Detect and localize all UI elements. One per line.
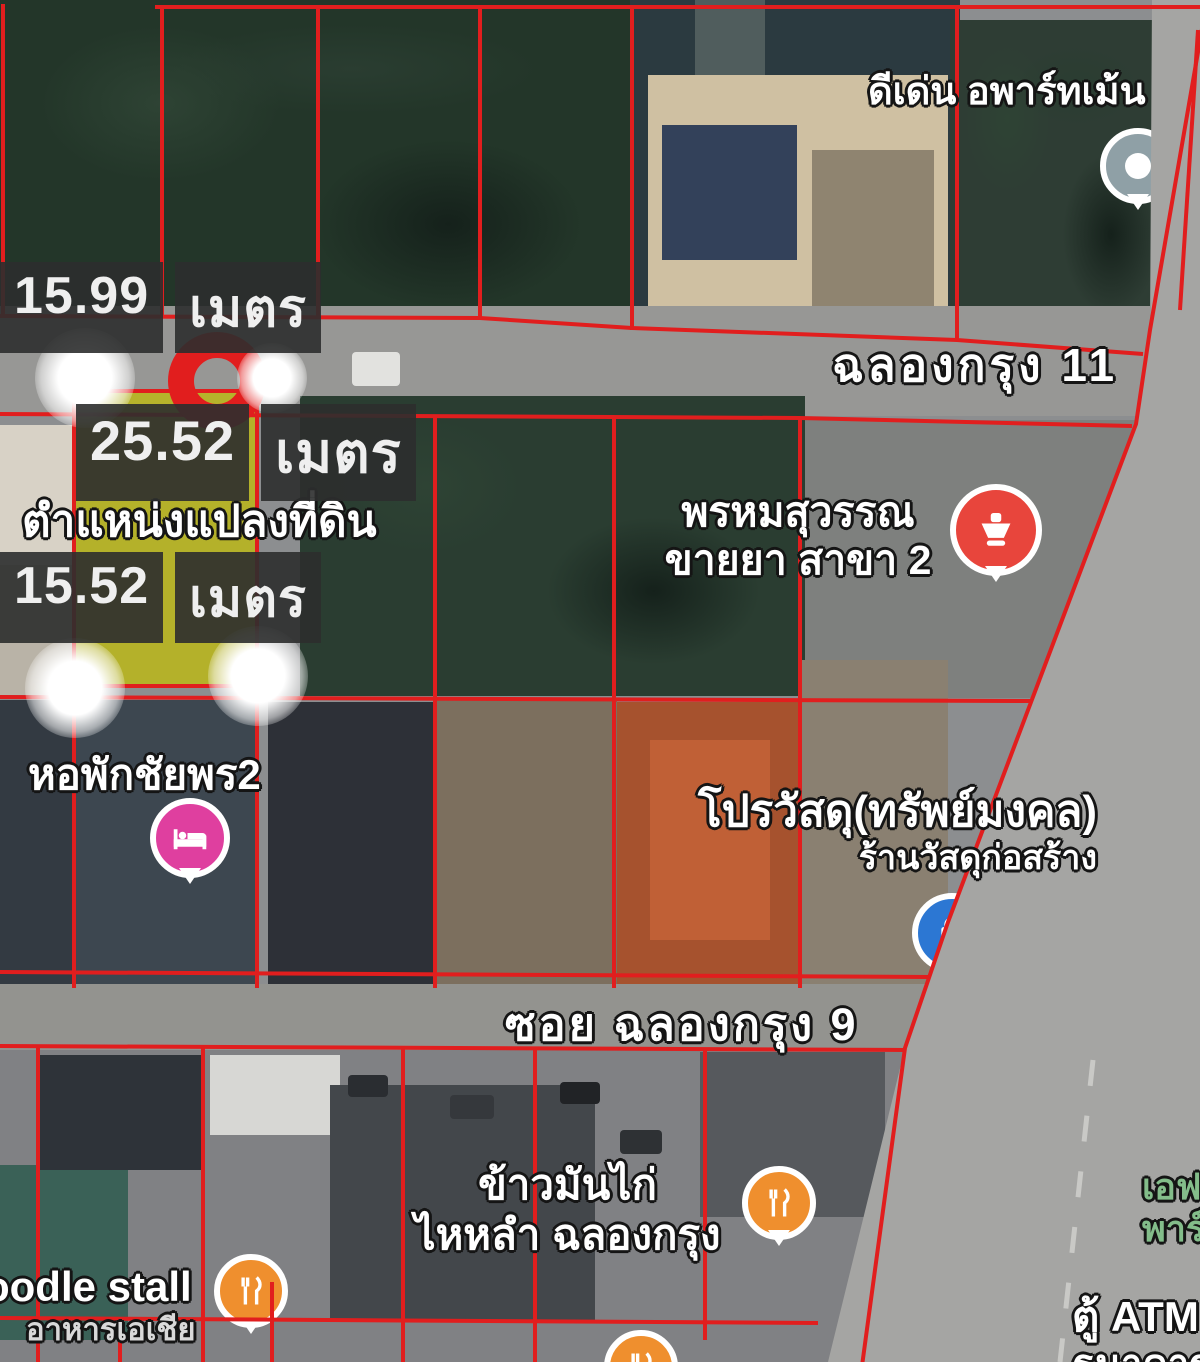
poi-label-line1: oodle stall (0, 1262, 196, 1312)
measurement-value: 15.99 (0, 262, 163, 353)
vehicle (1116, 469, 1143, 517)
poi-label-line2: ไหหลำ ฉลองกรุง (400, 1210, 735, 1260)
fork-knife-icon (233, 1273, 269, 1309)
atm-machine-icon[interactable] (872, 1312, 942, 1362)
measurement-unit: เมตร (261, 404, 416, 501)
poi-dot-icon (1125, 153, 1151, 179)
bed-icon (170, 818, 210, 858)
shopping-bag-icon (933, 914, 971, 952)
poi-label-apartment[interactable]: ดีเด่น อพาร์ทเม้น (868, 70, 1146, 115)
restaurant-pin[interactable] (742, 1166, 816, 1240)
vehicle (348, 1075, 388, 1097)
measurement-unit: เมตร (175, 262, 321, 353)
vehicle (352, 352, 400, 386)
apartment-court (812, 150, 934, 308)
poi-label-chicken-rice[interactable]: ข้าวมันไก่ ไหหลำ ฉลองกรุง (400, 1160, 735, 1259)
vehicle (560, 1082, 600, 1104)
poi-label-noodle-stall[interactable]: oodle stall อาหารเอเชีย (0, 1262, 196, 1348)
measurement-label-top: 15.99 เมตร (0, 262, 321, 353)
measurement-label-bottom: 15.52 เมตร (0, 552, 321, 643)
shop-pin[interactable] (912, 893, 992, 973)
vehicle (1126, 639, 1153, 687)
poi-label-dorm[interactable]: หอพักชัยพร2 (28, 750, 261, 800)
generic-poi-pin[interactable] (1100, 128, 1176, 204)
poi-label-atm[interactable]: ตู้ ATM ธนาคาร (1072, 1292, 1200, 1362)
pharmacy-pin[interactable] (950, 484, 1042, 576)
apartment-roof (662, 125, 797, 260)
measurement-value: 25.52 (76, 404, 249, 501)
fork-knife-icon (623, 1349, 659, 1362)
measurement-label-width: 25.52 เมตร (76, 404, 416, 501)
vehicle (450, 1095, 494, 1119)
vehicle (620, 1130, 662, 1154)
poi-label-park[interactable]: เอฟ พาร์ (1142, 1166, 1200, 1251)
vehicle (1136, 879, 1161, 923)
satellite-map[interactable]: 15.99 เมตร 25.52 เมตร 15.52 เมตร ตำแหน่ง… (0, 0, 1200, 1362)
measurement-unit: เมตร (175, 552, 321, 643)
fork-knife-icon (761, 1185, 797, 1221)
poi-label-pharmacy[interactable]: พรหมสุวรรณ ขายยา สาขา 2 (652, 488, 944, 585)
road-label-soi9: ซอย ฉลองกรุง 9 (505, 998, 859, 1051)
plot-position-label: ตำแหน่งแปลงที่ดิน (22, 496, 377, 548)
poi-label-line1: ข้าวมันไก่ (400, 1160, 735, 1210)
road-label-chalongkrung11: ฉลองกรุง 11 (832, 338, 1118, 392)
poi-label-line2: ร้านวัสดุก่อสร้าง (622, 838, 1097, 878)
poi-label-line1: เอฟ (1142, 1166, 1200, 1208)
mortar-pestle-icon (975, 509, 1017, 551)
poi-label-line2: ขายยา สาขา 2 (652, 536, 944, 584)
measurement-value: 15.52 (0, 552, 163, 643)
poi-label-line2: อาหารเอเชีย (26, 1312, 196, 1349)
poi-label-line1: ตู้ ATM (1072, 1292, 1200, 1342)
lodging-pin[interactable] (150, 798, 230, 878)
building-darkblue-left (0, 700, 73, 988)
white-vans (210, 1055, 340, 1135)
poi-label-line2: ธนาคาร (1072, 1342, 1200, 1362)
measurement-vertex-dot (25, 638, 125, 738)
building-tan (435, 700, 617, 988)
poi-label-line1: โปรวัสดุ(ทรัพย์มงคล) (622, 786, 1097, 838)
poi-label-line2: พาร์ (1142, 1208, 1200, 1250)
building-dark-mid (268, 702, 433, 988)
vehicle (1063, 1224, 1092, 1273)
building-dark-bottomleft (36, 1055, 201, 1170)
restaurant-pin[interactable] (214, 1254, 288, 1328)
measurement-vertex-dot (237, 343, 307, 413)
poi-label-line1: พรหมสุวรรณ (652, 488, 944, 536)
poi-label-materials[interactable]: โปรวัสดุ(ทรัพย์มงคล) ร้านวัสดุก่อสร้าง (622, 786, 1097, 878)
